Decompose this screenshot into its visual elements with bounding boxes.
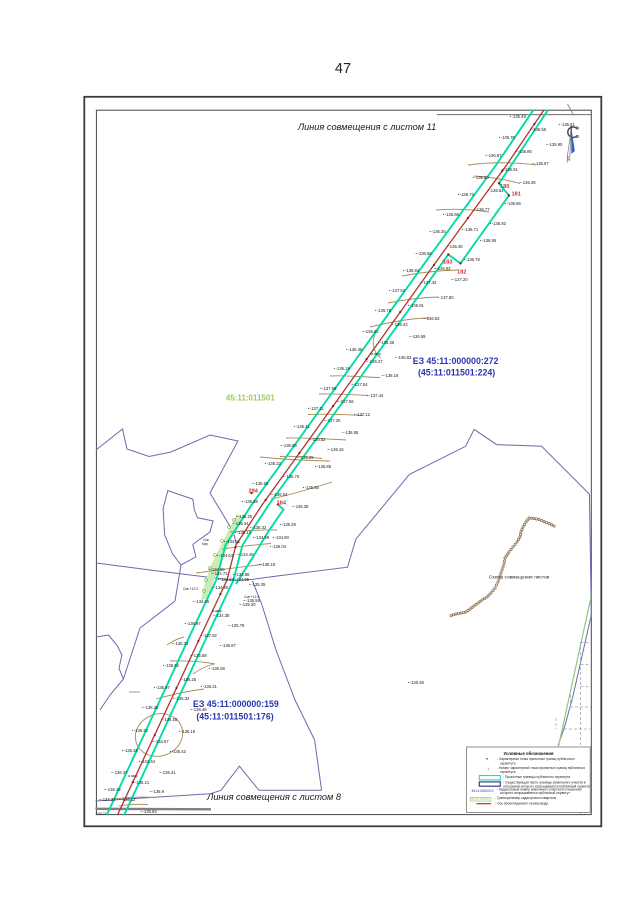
svg-text:-135.62: -135.62	[165, 663, 180, 668]
svg-text:-135.34: -135.34	[234, 521, 249, 526]
svg-text:-135.32: -135.32	[175, 696, 190, 701]
svg-text:-136.73: -136.73	[460, 192, 475, 197]
svg-text:а.закр.: а.закр.	[371, 352, 382, 356]
svg-text:-137.43: -137.43	[422, 280, 437, 285]
svg-text:-134.38: -134.38	[215, 613, 230, 618]
svg-text:-136.41: -136.41	[161, 770, 176, 775]
svg-text:-136.97: -136.97	[187, 621, 202, 626]
svg-text:сервитута: сервитута	[500, 761, 516, 765]
svg-text:-136.59: -136.59	[411, 334, 426, 339]
svg-text:-136.26: -136.26	[144, 705, 159, 710]
svg-text:сервитута: сервитута	[500, 770, 516, 774]
svg-text:-136.52: -136.52	[311, 437, 326, 442]
svg-text:-136.55: -136.55	[344, 430, 359, 435]
svg-text:- Проектные границы публичного: - Проектные границы публичного сервитута	[503, 775, 570, 779]
svg-text:-136.12: -136.12	[121, 797, 136, 802]
svg-text:-136.42: -136.42	[134, 728, 149, 733]
svg-text:-137.54: -137.54	[353, 382, 368, 387]
svg-text:-135.83: -135.83	[143, 809, 158, 814]
svg-text:-137.52: -137.52	[391, 288, 406, 293]
svg-text:-136.21: -136.21	[135, 780, 150, 785]
svg-text:-137.52: -137.52	[203, 633, 218, 638]
svg-text:-136.16: -136.16	[329, 447, 344, 452]
svg-text:294: 294	[249, 489, 259, 495]
svg-text:-136.21: -136.21	[203, 684, 218, 689]
svg-text:-137.44: -137.44	[369, 393, 384, 398]
svg-text:Условные обозначения: Условные обозначения	[503, 751, 554, 756]
svg-text:-135.55: -135.55	[305, 485, 320, 490]
svg-text:-135.29: -135.29	[282, 522, 297, 527]
svg-text:-135.32: -135.32	[252, 525, 267, 530]
svg-text:-136.36: -136.36	[380, 340, 395, 345]
svg-text:-136.87: -136.87	[487, 153, 502, 158]
svg-text:-137.69: -137.69	[322, 386, 337, 391]
svg-text:-136.58: -136.58	[283, 443, 298, 448]
svg-text:-135.79: -135.79	[230, 623, 245, 628]
svg-text:-134.44: -134.44	[141, 759, 156, 764]
svg-text:которого испрашивается публичн: которого испрашивается публичный сервиту…	[500, 791, 570, 795]
svg-text:-136.63: -136.63	[397, 355, 412, 360]
svg-text:ЕЗ 45:11:000000:272: ЕЗ 45:11:000000:272	[413, 356, 499, 366]
svg-text:47: 47	[335, 61, 351, 77]
svg-text:-135.12: -135.12	[237, 530, 252, 535]
svg-text:-136.82: -136.82	[492, 221, 507, 226]
svg-text:-136.56: -136.56	[418, 251, 433, 256]
svg-text:-136.48: -136.48	[521, 180, 536, 185]
svg-text:-134.61: -134.61	[226, 539, 241, 544]
svg-text:-136.37: -136.37	[368, 359, 383, 364]
svg-text:-130.48: -130.48	[410, 680, 425, 685]
svg-text:-134.90: -134.90	[214, 585, 229, 590]
svg-text:-135.97: -135.97	[156, 685, 171, 690]
svg-text:-135.35: -135.35	[251, 582, 266, 587]
svg-text:-134.65: -134.65	[195, 599, 210, 604]
svg-text:-136.42: -136.42	[172, 749, 187, 754]
svg-text:-134.99: -134.99	[255, 535, 270, 540]
svg-text:-136.85: -136.85	[482, 238, 497, 243]
svg-text:-134.46: -134.46	[239, 552, 254, 557]
svg-text:-135.04: -135.04	[272, 544, 287, 549]
svg-text:-135.85: -135.85	[317, 464, 332, 469]
svg-text:-137.20: -137.20	[453, 277, 468, 282]
svg-text:- Граница/номер кадастрового к: - Граница/номер кадастрового квартала	[495, 796, 556, 800]
svg-text:-136.78: -136.78	[466, 257, 481, 262]
svg-text:-136.71: -136.71	[464, 227, 479, 232]
svg-text:-136.48: -136.48	[448, 244, 463, 249]
svg-text:Линия совмещения с листом 8: Линия совмещения с листом 8	[206, 792, 342, 802]
svg-text:-136.60: -136.60	[475, 175, 490, 180]
svg-text:-136.86: -136.86	[507, 201, 522, 206]
svg-text:-136.68: -136.68	[254, 481, 269, 486]
svg-text:-137.12: -137.12	[356, 412, 371, 417]
svg-text:-136.77: -136.77	[475, 207, 490, 212]
svg-text:-136.48: -136.48	[124, 748, 139, 753]
svg-text:-135.18: -135.18	[261, 562, 276, 567]
svg-text:-135.97: -135.97	[535, 161, 550, 166]
svg-text:-136.9: -136.9	[152, 789, 165, 794]
svg-text:-136.04: -136.04	[273, 492, 288, 497]
svg-text:-136.76: -136.76	[377, 308, 392, 313]
svg-text:-136.76: -136.76	[285, 474, 300, 479]
svg-text:45:11:011501: 45:11:011501	[226, 394, 275, 403]
svg-text:-134.95: -134.95	[235, 577, 250, 582]
svg-text:Скв +12.0: Скв +12.0	[183, 587, 198, 591]
svg-text:45:11:011501: 45:11:011501	[471, 797, 489, 801]
svg-text:-136.84: -136.84	[405, 268, 420, 273]
svg-text:-134.63: -134.63	[219, 553, 234, 558]
svg-text:- Ось проектируемого газопрово: - Ось проектируемого газопровода	[495, 802, 548, 806]
svg-text:-136.41: -136.41	[296, 424, 311, 429]
svg-text:-137.56: -137.56	[339, 399, 354, 404]
svg-text:184: 184	[277, 501, 287, 507]
svg-text:-137.26: -137.26	[326, 418, 341, 423]
svg-text:-135.58: -135.58	[244, 499, 259, 504]
svg-text:-136.25: -136.25	[299, 455, 314, 460]
svg-text:-136.91: -136.91	[410, 303, 425, 308]
svg-text:-135.80: -135.80	[518, 149, 533, 154]
svg-text:-136.19: -136.19	[106, 787, 121, 792]
svg-text:-136.25: -136.25	[182, 677, 197, 682]
svg-text:-134.58: -134.58	[163, 717, 178, 722]
svg-text:-136.53: -136.53	[425, 316, 440, 321]
svg-text:-137.11: -137.11	[310, 406, 325, 411]
svg-text:-135.87: -135.87	[222, 643, 237, 648]
svg-text:ЕЗ 45:11:000000:159: ЕЗ 45:11:000000:159	[193, 699, 279, 709]
svg-text:-135.25: -135.25	[238, 514, 253, 519]
svg-text:-135.49: -135.49	[512, 114, 527, 119]
svg-text:-136.91: -136.91	[504, 167, 519, 172]
svg-text:183: 183	[443, 260, 452, 266]
svg-text:-135.90: -135.90	[548, 142, 563, 147]
svg-text:1сж: 1сж	[203, 538, 210, 542]
svg-text:-136.35: -136.35	[348, 347, 363, 352]
svg-text:-136.18: -136.18	[384, 373, 399, 378]
svg-text:-134.68: -134.68	[220, 577, 235, 582]
svg-text:а.закр.: а.закр.	[212, 609, 223, 613]
svg-text:(45:11:011501:176): (45:11:011501:176)	[196, 712, 273, 722]
svg-text:-136.19: -136.19	[181, 729, 196, 734]
svg-text:-134.67: -134.67	[155, 739, 170, 744]
svg-text:-136.19: -136.19	[336, 366, 351, 371]
svg-text:-135.58: -135.58	[192, 653, 207, 658]
svg-text:-136.43: -136.43	[393, 322, 408, 327]
svg-text:-136.66: -136.66	[445, 212, 460, 217]
svg-text:-136.37: -136.37	[113, 770, 128, 775]
svg-text:-136.64: -136.64	[489, 188, 504, 193]
svg-text:-136.42: -136.42	[364, 329, 379, 334]
svg-text:Линия совмещения с листом 11: Линия совмещения с листом 11	[297, 122, 436, 132]
svg-text:-136.22: -136.22	[267, 461, 282, 466]
svg-text:-135.74: -135.74	[95, 812, 107, 816]
svg-text:182: 182	[457, 270, 466, 276]
svg-text:-135.76: -135.76	[501, 135, 516, 140]
svg-text:45:11:000000:3: 45:11:000000:3	[472, 789, 494, 793]
svg-text:Скв +12.0: Скв +12.0	[244, 595, 259, 599]
svg-text:-137.60: -137.60	[439, 295, 454, 300]
svg-text:-134.90: -134.90	[275, 535, 290, 540]
svg-text:-135.34: -135.34	[174, 641, 189, 646]
svg-text:181: 181	[512, 192, 521, 198]
svg-text:-136.08: -136.08	[211, 666, 226, 671]
svg-text:-135.58: -135.58	[532, 127, 547, 132]
svg-text:-135.30: -135.30	[241, 602, 256, 607]
svg-text:-134.24: -134.24	[101, 797, 116, 802]
svg-text:а.закр.: а.закр.	[128, 774, 139, 778]
svg-text:-135.38: -135.38	[294, 504, 309, 509]
svg-text:Кир.: Кир.	[202, 542, 209, 546]
svg-text:(45:11:011501:224): (45:11:011501:224)	[418, 368, 495, 378]
svg-text:-136.93: -136.93	[436, 266, 451, 271]
svg-text:-136.35: -136.35	[432, 229, 447, 234]
svg-text:-134.72: -134.72	[213, 571, 228, 576]
